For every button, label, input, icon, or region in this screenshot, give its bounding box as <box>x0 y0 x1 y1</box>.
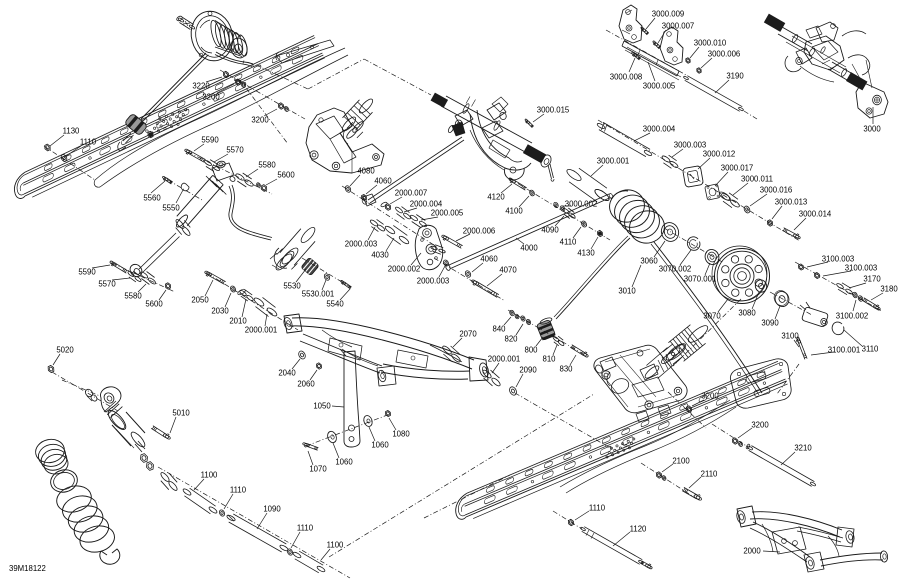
svg-text:3000.013: 3000.013 <box>775 198 808 207</box>
svg-text:820: 820 <box>504 335 518 344</box>
svg-text:1110: 1110 <box>297 524 314 533</box>
svg-text:3110: 3110 <box>862 345 879 354</box>
svg-text:1110: 1110 <box>230 486 247 495</box>
svg-text:2090: 2090 <box>519 366 537 375</box>
svg-text:3100.003: 3100.003 <box>845 264 878 273</box>
svg-text:5020: 5020 <box>56 346 74 355</box>
svg-text:5540: 5540 <box>326 300 344 309</box>
svg-text:1100: 1100 <box>327 541 344 550</box>
svg-text:3000.005: 3000.005 <box>643 82 676 91</box>
svg-text:2100: 2100 <box>672 457 690 466</box>
svg-text:840: 840 <box>492 325 506 334</box>
svg-text:4060: 4060 <box>374 177 392 186</box>
svg-text:3000.010: 3000.010 <box>694 39 727 48</box>
svg-text:2060: 2060 <box>297 380 315 389</box>
svg-text:800: 800 <box>524 346 538 355</box>
svg-text:3180: 3180 <box>880 285 898 294</box>
svg-text:4130: 4130 <box>577 249 595 258</box>
svg-text:2110: 2110 <box>701 470 718 479</box>
svg-text:5600: 5600 <box>277 171 295 180</box>
svg-text:3200: 3200 <box>202 93 220 102</box>
svg-text:4090: 4090 <box>541 226 559 235</box>
svg-text:3170: 3170 <box>863 275 881 284</box>
svg-text:3070: 3070 <box>703 312 721 321</box>
svg-text:3000.007: 3000.007 <box>662 22 695 31</box>
svg-text:3200: 3200 <box>251 116 269 125</box>
svg-text:2000.006: 2000.006 <box>463 227 496 236</box>
svg-text:830: 830 <box>559 365 573 374</box>
svg-text:1060: 1060 <box>335 458 353 467</box>
svg-text:4030: 4030 <box>371 251 389 260</box>
svg-text:2000: 2000 <box>743 547 761 556</box>
svg-text:3200: 3200 <box>751 421 769 430</box>
svg-text:3010: 3010 <box>618 287 636 296</box>
svg-text:3000.004: 3000.004 <box>643 125 676 134</box>
svg-text:5580: 5580 <box>124 292 142 301</box>
svg-text:3000.016: 3000.016 <box>760 186 793 195</box>
svg-text:1110: 1110 <box>589 504 606 513</box>
svg-text:2030: 2030 <box>211 307 229 316</box>
svg-text:1050: 1050 <box>313 402 331 411</box>
svg-text:3000.006: 3000.006 <box>708 50 741 59</box>
svg-text:2070: 2070 <box>459 330 477 339</box>
svg-text:1080: 1080 <box>392 430 410 439</box>
svg-text:3080: 3080 <box>738 309 756 318</box>
svg-text:4120: 4120 <box>487 193 505 202</box>
svg-text:5530.001: 5530.001 <box>302 290 335 299</box>
svg-text:3000.011: 3000.011 <box>741 175 773 184</box>
svg-text:3220: 3220 <box>192 82 210 91</box>
svg-text:2000.001: 2000.001 <box>245 326 278 335</box>
svg-text:5530: 5530 <box>283 282 301 291</box>
svg-text:5570: 5570 <box>98 280 116 289</box>
svg-text:3070.001: 3070.001 <box>684 275 717 284</box>
svg-text:5560: 5560 <box>143 194 161 203</box>
svg-text:3190: 3190 <box>726 72 744 81</box>
svg-text:3200: 3200 <box>701 392 719 401</box>
svg-text:3000.003: 3000.003 <box>674 141 707 150</box>
svg-text:3070.002: 3070.002 <box>659 265 692 274</box>
svg-text:5600: 5600 <box>145 300 163 309</box>
svg-text:3060: 3060 <box>640 257 658 266</box>
svg-text:810: 810 <box>542 355 556 364</box>
svg-text:3100.002: 3100.002 <box>836 312 869 321</box>
svg-text:1060: 1060 <box>371 441 389 450</box>
svg-text:2000.002: 2000.002 <box>388 265 421 274</box>
svg-text:1100: 1100 <box>201 471 218 480</box>
svg-text:3000.012: 3000.012 <box>703 150 736 159</box>
svg-text:1070: 1070 <box>309 465 327 474</box>
svg-text:4000: 4000 <box>520 244 538 253</box>
svg-text:3000.008: 3000.008 <box>610 73 643 82</box>
svg-text:4100: 4100 <box>505 207 523 216</box>
svg-text:3090: 3090 <box>761 319 779 328</box>
svg-text:1090: 1090 <box>263 505 281 514</box>
svg-text:3000.014: 3000.014 <box>799 210 832 219</box>
svg-text:3100.003: 3100.003 <box>822 255 855 264</box>
svg-text:2000.003: 2000.003 <box>417 277 450 286</box>
svg-text:2050: 2050 <box>191 296 209 305</box>
svg-text:3100: 3100 <box>781 332 799 341</box>
svg-text:39M18122: 39M18122 <box>9 564 46 573</box>
svg-text:3210: 3210 <box>794 444 812 453</box>
svg-text:2000.001: 2000.001 <box>488 355 521 364</box>
svg-text:5590: 5590 <box>78 268 96 277</box>
svg-text:3000.009: 3000.009 <box>652 10 685 19</box>
svg-text:4070: 4070 <box>499 266 517 275</box>
svg-text:4080: 4080 <box>357 167 375 176</box>
svg-text:3000.015: 3000.015 <box>537 106 570 115</box>
svg-text:3100.001: 3100.001 <box>828 346 861 355</box>
svg-text:2040: 2040 <box>278 369 296 378</box>
svg-text:2010: 2010 <box>229 317 247 326</box>
svg-text:3000.002: 3000.002 <box>565 200 598 209</box>
svg-text:2000.003: 2000.003 <box>345 240 378 249</box>
svg-text:5580: 5580 <box>258 161 276 170</box>
svg-text:3000.017: 3000.017 <box>721 164 754 173</box>
svg-text:5550: 5550 <box>162 204 180 213</box>
svg-text:2000.005: 2000.005 <box>431 209 464 218</box>
svg-text:5590: 5590 <box>201 136 219 145</box>
svg-text:2000.004: 2000.004 <box>410 200 443 209</box>
svg-text:5010: 5010 <box>172 409 190 418</box>
svg-text:1110: 1110 <box>80 138 97 147</box>
svg-text:3000: 3000 <box>863 125 881 134</box>
svg-text:2000.007: 2000.007 <box>395 189 428 198</box>
svg-text:1120: 1120 <box>630 525 647 534</box>
svg-text:1130: 1130 <box>63 127 80 136</box>
svg-text:4110: 4110 <box>560 238 577 247</box>
svg-text:3000.001: 3000.001 <box>597 157 630 166</box>
svg-text:4060: 4060 <box>480 255 498 264</box>
svg-text:5570: 5570 <box>226 146 244 155</box>
